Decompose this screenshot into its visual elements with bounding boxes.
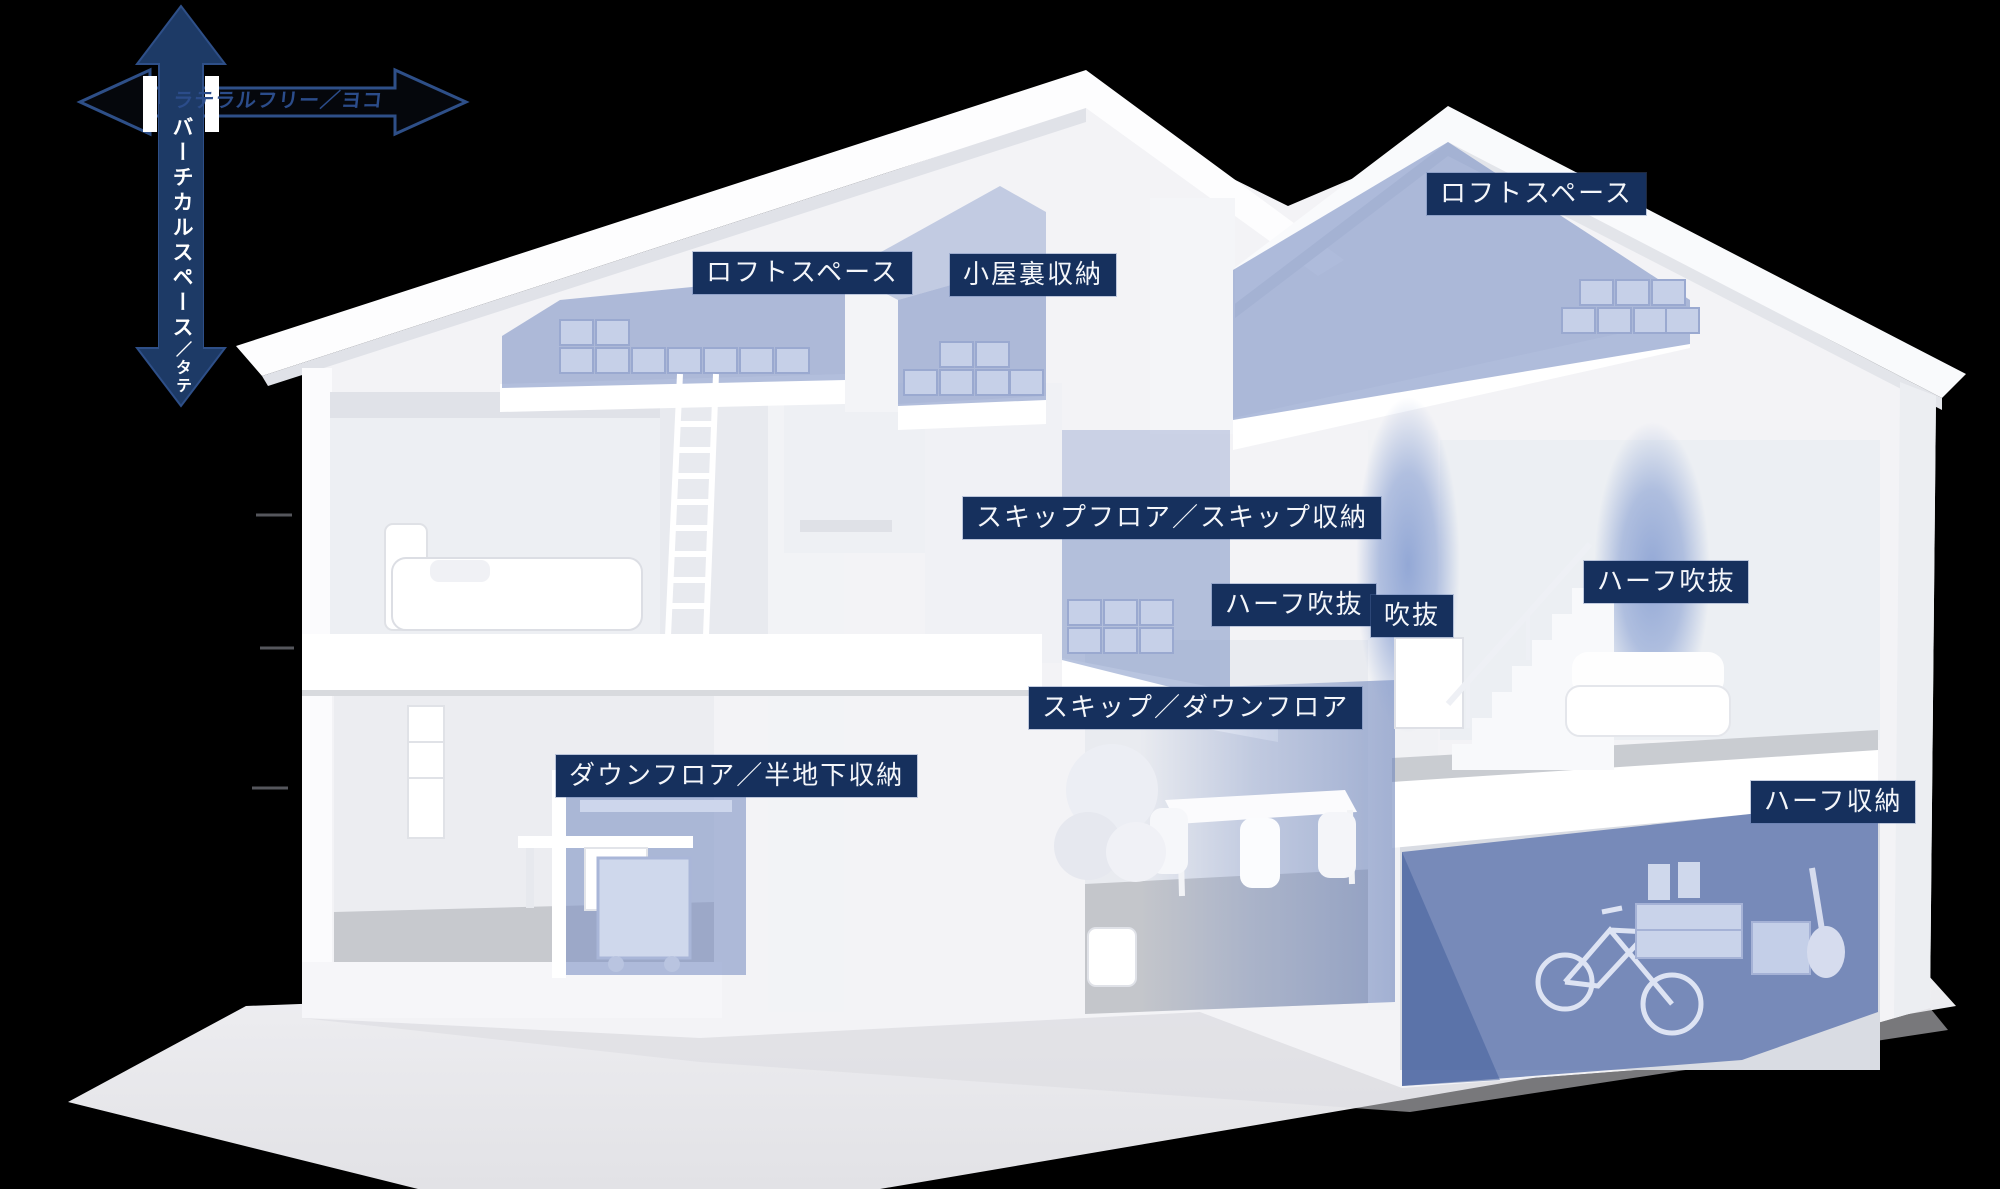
room-label-down-floor: ダウンフロア／半地下収納: [556, 755, 917, 797]
vertical-axis-label: バーチカルスペース／タテ: [157, 116, 205, 402]
vertical-axis-label-sub: ／タテ: [173, 341, 190, 395]
horizontal-axis-label: ラテラルフリー／ヨコ: [156, 84, 400, 118]
dimension-ticks: [252, 515, 294, 788]
house-concept-diagram: ラテラルフリー／ヨコ バーチカルスペース／タテ ロフトスペース 小屋裏収納 ロフ…: [0, 0, 2000, 1189]
room-label-skip-floor: スキップフロア／スキップ収納: [963, 497, 1381, 539]
room-label-skip-down-floor: スキップ／ダウンフロア: [1029, 687, 1362, 729]
room-label-half-storage: ハーフ収納: [1751, 781, 1915, 823]
room-label-void: 吹抜: [1371, 595, 1453, 637]
room-label-half-void-right: ハーフ吹抜: [1584, 561, 1748, 603]
vertical-axis-label-main: バーチカルスペース: [170, 116, 193, 341]
room-label-loft-left: ロフトスペース: [693, 252, 912, 294]
room-label-half-void-left: ハーフ吹抜: [1212, 584, 1376, 626]
room-label-attic-storage: 小屋裏収納: [950, 254, 1116, 296]
room-label-loft-right: ロフトスペース: [1427, 173, 1646, 215]
